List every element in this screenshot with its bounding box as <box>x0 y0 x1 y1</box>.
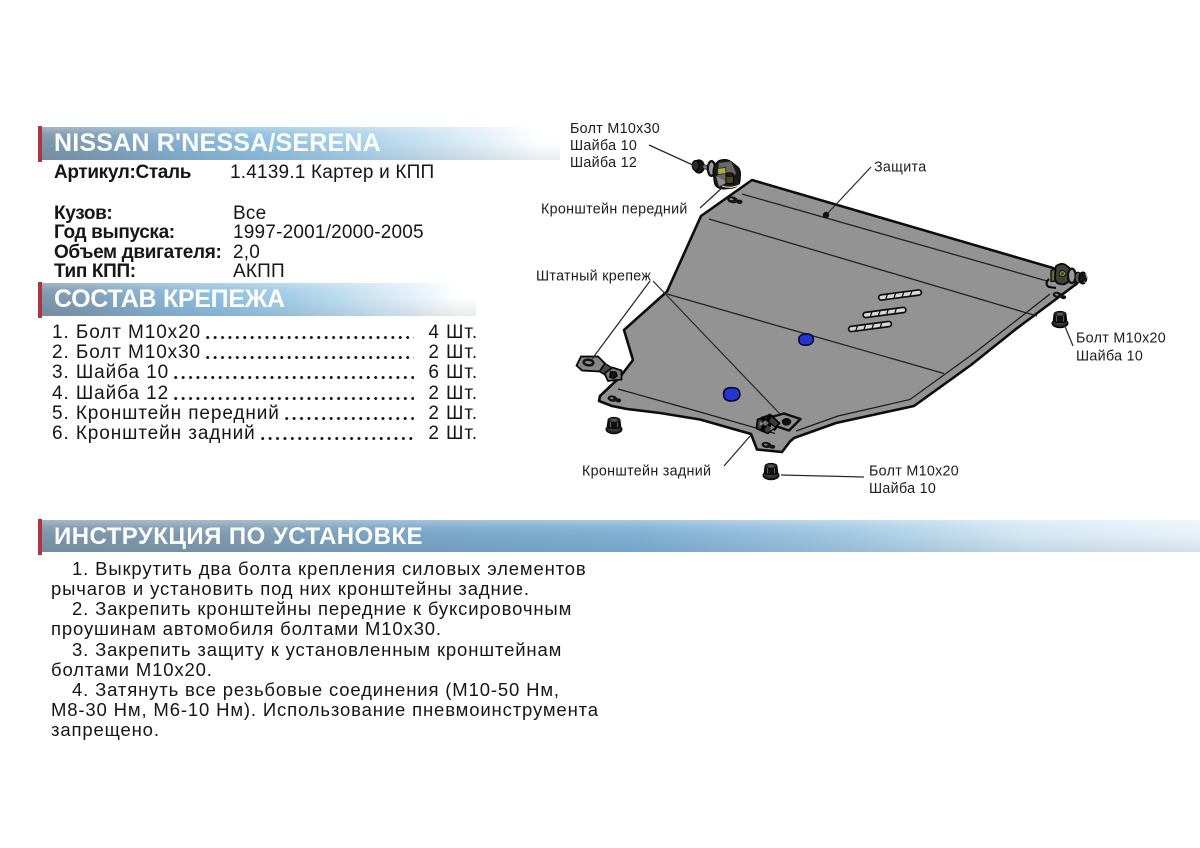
svg-text:Шайба 10: Шайба 10 <box>570 138 637 154</box>
svg-text:Болт М10х20: Болт М10х20 <box>1076 331 1166 347</box>
svg-text:Кронштейн передний: Кронштейн передний <box>541 202 688 218</box>
svg-text:Шайба 10: Шайба 10 <box>869 481 936 497</box>
svg-text:Шайба 10: Шайба 10 <box>1076 349 1143 365</box>
svg-text:Штатный крепеж: Штатный крепеж <box>536 269 651 285</box>
svg-text:Шайба 12: Шайба 12 <box>570 155 637 171</box>
svg-text:Защита: Защита <box>874 160 926 176</box>
svg-text:Болт М10х20: Болт М10х20 <box>869 464 959 480</box>
svg-text:Болт М10х30: Болт М10х30 <box>570 121 660 137</box>
svg-text:Кронштейн задний: Кронштейн задний <box>582 464 711 480</box>
